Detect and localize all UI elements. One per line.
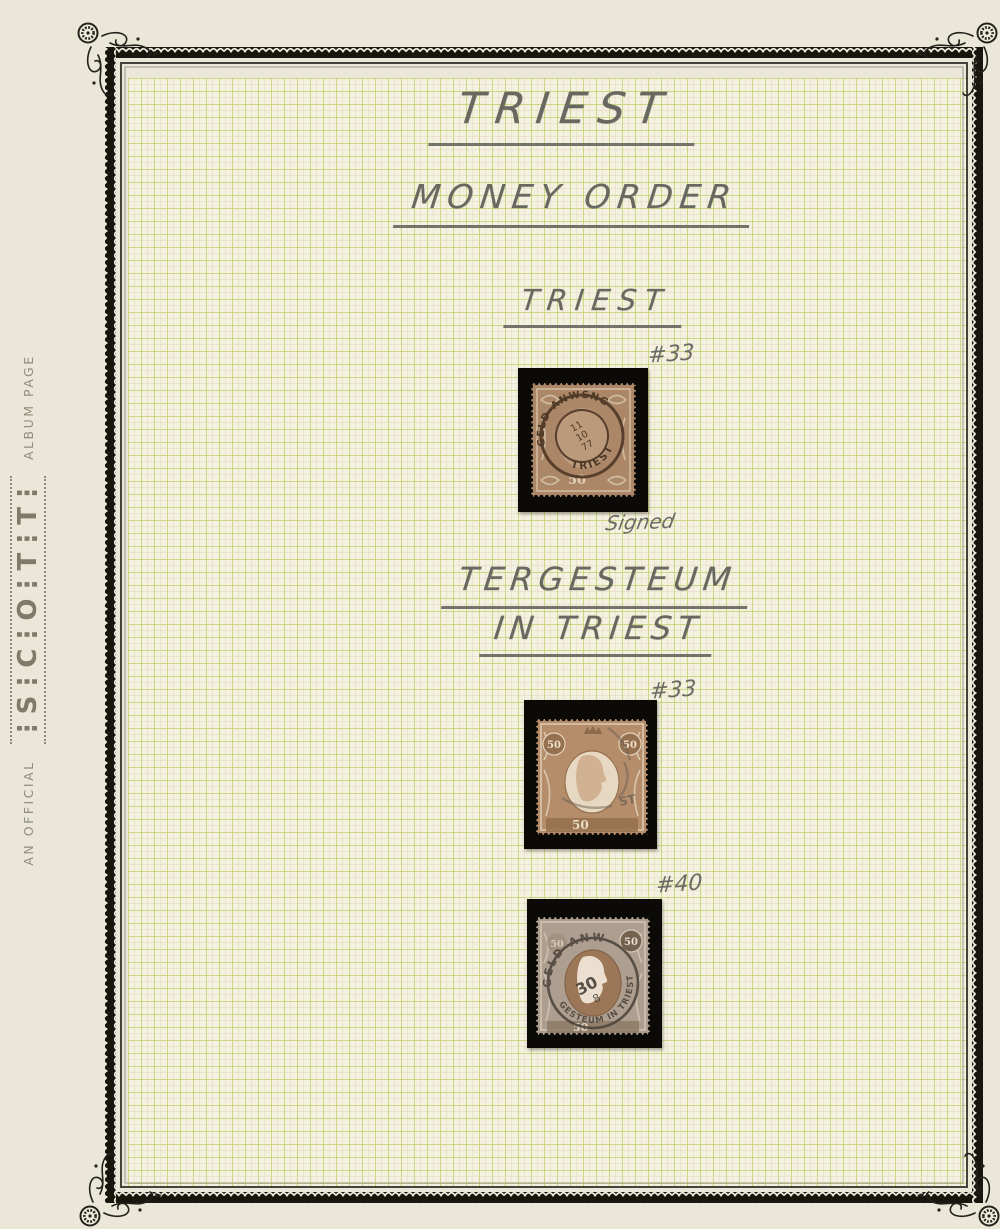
stamp-mount-3: 50 50 50 GELD-ANW GESTEUM IN TRIEST: [527, 899, 662, 1048]
stamp-3-value-right: 50: [624, 937, 638, 948]
stamp-3-tergesteum-cancel: 50 50 50 GELD-ANW GESTEUM IN TRIEST: [527, 899, 662, 1048]
catalog-number-stamp3: #40: [656, 870, 703, 898]
stamp-1-money-order-cancel: 50 GELD-ANWSNG TRIEST 11 10 77: [518, 368, 648, 512]
catalog-number-stamp1: #33: [648, 340, 695, 368]
corner-ornament-top-right: [915, 24, 997, 96]
signed-note: Signed: [604, 509, 677, 536]
stamp-2-value-left: 50: [547, 740, 561, 751]
scott-logo: ⋮S⋮C⋮O⋮T⋮T⋮: [10, 476, 46, 744]
corner-ornament-top-left: [79, 24, 161, 96]
section-heading-tergesteum: TERGESTEUM: [441, 560, 753, 609]
page-subtitle: MONEY ORDER: [393, 177, 755, 228]
frame-band-top: [105, 47, 983, 58]
branding-prefix: AN OFFICIAL: [21, 760, 36, 865]
frame-band-left: [105, 47, 116, 1203]
stamp-mount-1: 50 GELD-ANWSNG TRIEST 11 10 77: [518, 368, 648, 512]
scott-album-branding: AN OFFICIAL ⋮S⋮C⋮O⋮T⋮T⋮ ALBUM PAGE: [8, 410, 48, 810]
section-heading-in-triest: IN TRIEST: [479, 609, 717, 657]
frame-band-right: [972, 47, 983, 1203]
album-page-scan: AN OFFICIAL ⋮S⋮C⋮O⋮T⋮T⋮ ALBUM PAGE TRIES…: [0, 0, 1000, 1229]
stamp-2-franz-joseph: 50 50 50 ST: [524, 700, 657, 849]
frame-band-bottom: [105, 1192, 983, 1203]
stamp-mount-2: 50 50 50 ST: [524, 700, 657, 849]
stamp-2-value-bottom: 50: [572, 818, 589, 832]
branding-suffix: ALBUM PAGE: [21, 354, 36, 460]
section-heading-triest: TRIEST: [503, 283, 687, 328]
corner-ornament-bottom-right: [917, 1154, 999, 1226]
page-title: TRIEST: [428, 84, 702, 146]
